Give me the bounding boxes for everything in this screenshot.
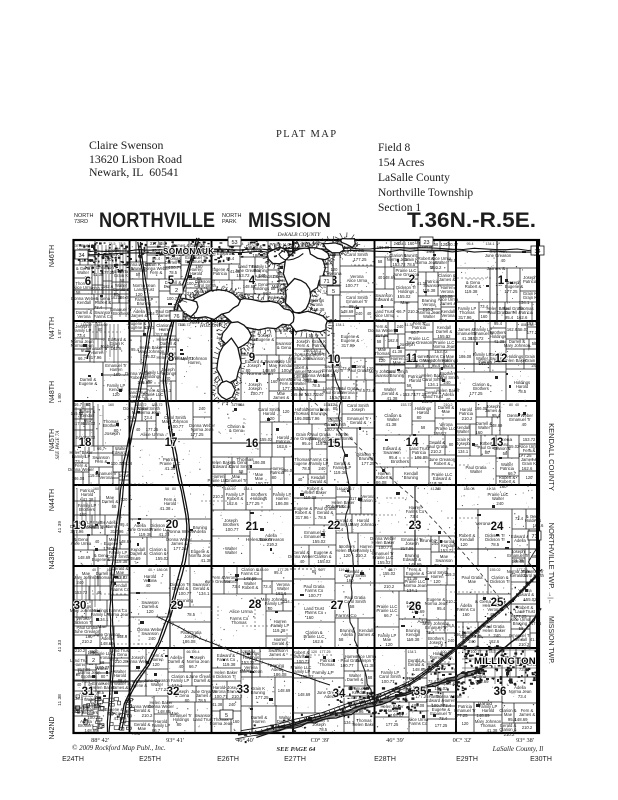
svg-text:78.5: 78.5 xyxy=(518,389,527,394)
svg-text:78.5: 78.5 xyxy=(132,731,141,736)
svg-text:73.4: 73.4 xyxy=(232,584,241,589)
svg-text:66.7: 66.7 xyxy=(152,728,161,733)
svg-text:Kendall: Kendall xyxy=(77,300,91,305)
svg-text:41.38: 41.38 xyxy=(530,637,541,642)
svg-text:Patricia: Patricia xyxy=(213,271,228,276)
svg-text:Clarion &: Clarion & xyxy=(359,498,376,503)
svg-text:80: 80 xyxy=(172,487,176,491)
svg-text:95.4: 95.4 xyxy=(302,441,311,446)
svg-text:153.72: 153.72 xyxy=(523,437,536,442)
svg-text:317.96: 317.96 xyxy=(400,546,414,551)
svg-text:120: 120 xyxy=(385,642,393,647)
svg-text:James &: James & xyxy=(439,277,455,282)
svg-text:80: 80 xyxy=(312,569,317,574)
svg-text:58: 58 xyxy=(519,626,524,631)
svg-text:160: 160 xyxy=(233,719,241,724)
svg-text:120: 120 xyxy=(311,650,317,654)
svg-text:80: 80 xyxy=(185,698,190,703)
svg-text:66.7: 66.7 xyxy=(74,402,83,407)
svg-text:119.38: 119.38 xyxy=(312,307,325,312)
svg-text:41.38: 41.38 xyxy=(387,396,398,401)
svg-text:186.08: 186.08 xyxy=(72,476,85,481)
svg-text:148.69: 148.69 xyxy=(119,539,132,544)
svg-text:80: 80 xyxy=(272,475,277,480)
svg-text:160: 160 xyxy=(113,372,121,377)
svg-text:41.38: 41.38 xyxy=(405,323,414,327)
svg-text:40: 40 xyxy=(522,422,527,427)
svg-text:95.4: 95.4 xyxy=(492,413,501,418)
svg-text:134.1: 134.1 xyxy=(336,323,345,327)
svg-text:240: 240 xyxy=(426,249,434,254)
svg-text:73.4: 73.4 xyxy=(263,584,272,589)
svg-text:Helen Baker: Helen Baker xyxy=(352,722,376,727)
svg-text:148.69: 148.69 xyxy=(258,568,269,572)
svg-text:160: 160 xyxy=(346,578,354,583)
svg-text:66.7: 66.7 xyxy=(189,664,198,669)
svg-text:162.6: 162.6 xyxy=(522,466,533,471)
svg-text:153.72: 153.72 xyxy=(392,262,406,267)
svg-text:40: 40 xyxy=(95,539,100,544)
svg-text:210.2: 210.2 xyxy=(444,403,453,407)
svg-text:119.38: 119.38 xyxy=(304,495,317,500)
svg-text:66.7: 66.7 xyxy=(319,568,326,572)
svg-text:120: 120 xyxy=(146,609,154,614)
svg-text:95.4: 95.4 xyxy=(238,403,245,407)
svg-text:186.08: 186.08 xyxy=(157,568,168,572)
svg-text:210.2: 210.2 xyxy=(356,553,367,558)
svg-text:148.69: 148.69 xyxy=(84,728,98,733)
svg-text:186.08: 186.08 xyxy=(273,672,287,677)
svg-text:58: 58 xyxy=(112,504,117,509)
svg-text:Adella: Adella xyxy=(514,538,526,543)
svg-text:58: 58 xyxy=(339,637,344,642)
svg-text:80: 80 xyxy=(268,606,273,611)
svg-text:148.69: 148.69 xyxy=(225,487,236,491)
svg-text:Adella: Adella xyxy=(254,274,268,280)
svg-text:Eugene &: Eugene & xyxy=(79,381,98,386)
svg-text:100.77: 100.77 xyxy=(178,591,192,596)
svg-text:177.25: 177.25 xyxy=(504,289,518,294)
svg-text:73.4: 73.4 xyxy=(77,333,86,338)
svg-text:160: 160 xyxy=(462,612,470,617)
svg-text:Bruning: Bruning xyxy=(404,475,419,480)
svg-text:Farms Co: Farms Co xyxy=(111,587,130,592)
svg-text:186.08: 186.08 xyxy=(282,468,295,473)
svg-text:119.38: 119.38 xyxy=(339,568,350,572)
svg-text:80: 80 xyxy=(86,403,90,407)
svg-text:Mary Johnson: Mary Johnson xyxy=(350,522,377,527)
svg-text:210.2: 210.2 xyxy=(504,732,515,737)
svg-text:40: 40 xyxy=(446,397,451,402)
svg-text:153.72: 153.72 xyxy=(470,336,484,341)
svg-text:Mae: Mae xyxy=(468,579,477,584)
svg-text:148.69: 148.69 xyxy=(127,556,141,561)
svg-text:40: 40 xyxy=(501,258,506,263)
svg-text:41.38: 41.38 xyxy=(487,728,498,733)
svg-text:210.2: 210.2 xyxy=(213,494,224,499)
svg-text:40: 40 xyxy=(148,568,152,572)
svg-text:58: 58 xyxy=(421,425,426,430)
svg-text:134.1: 134.1 xyxy=(428,382,439,387)
svg-text:134.1: 134.1 xyxy=(408,650,417,654)
svg-text:Robert &: Robert & xyxy=(242,585,259,590)
svg-text:120: 120 xyxy=(526,475,534,480)
svg-text:Adella: Adella xyxy=(194,529,206,534)
svg-text:100.77: 100.77 xyxy=(214,694,228,699)
svg-text:Joseph: Joseph xyxy=(351,407,365,412)
svg-text:120: 120 xyxy=(283,409,291,414)
svg-text:78.5: 78.5 xyxy=(187,612,196,617)
svg-text:119.38: 119.38 xyxy=(334,470,347,475)
svg-text:Alice Urma: Alice Urma xyxy=(140,432,164,438)
svg-text:120: 120 xyxy=(159,242,165,246)
svg-text:100.77: 100.77 xyxy=(378,545,392,550)
svg-text:120: 120 xyxy=(343,553,351,558)
svg-text:40: 40 xyxy=(298,477,303,482)
svg-text:58: 58 xyxy=(368,675,373,680)
svg-text:120: 120 xyxy=(89,650,95,654)
svg-text:134.1: 134.1 xyxy=(244,487,253,491)
svg-text:78.5: 78.5 xyxy=(489,650,496,654)
svg-text:240: 240 xyxy=(397,324,405,329)
svg-text:Helen Baker: Helen Baker xyxy=(246,537,273,543)
svg-text:177.25: 177.25 xyxy=(246,501,260,506)
svg-text:Bruning: Bruning xyxy=(420,538,437,544)
svg-text:95.4: 95.4 xyxy=(437,606,446,611)
svg-text:41.38: 41.38 xyxy=(525,323,534,327)
svg-text:186.08: 186.08 xyxy=(414,455,428,460)
svg-text:Joseph: Joseph xyxy=(104,431,120,437)
svg-text:Fern &: Fern & xyxy=(95,459,108,464)
svg-text:73.4: 73.4 xyxy=(426,630,435,635)
svg-text:95.4: 95.4 xyxy=(505,315,514,320)
svg-text:41.38: 41.38 xyxy=(329,403,338,407)
svg-text:Norma Jean: Norma Jean xyxy=(247,371,273,377)
svg-text:120: 120 xyxy=(433,579,441,584)
svg-text:148.69: 148.69 xyxy=(476,713,490,718)
svg-text:155.02: 155.02 xyxy=(373,318,387,323)
svg-text:Joseph: Joseph xyxy=(399,342,415,348)
svg-text:134.1: 134.1 xyxy=(458,449,469,454)
svg-text:119.38: 119.38 xyxy=(407,637,420,642)
svg-text:240: 240 xyxy=(318,466,326,471)
svg-text:Family LP: Family LP xyxy=(312,670,333,676)
svg-text:134.1: 134.1 xyxy=(486,242,495,246)
svg-text:160: 160 xyxy=(306,615,314,620)
svg-text:210.2: 210.2 xyxy=(431,265,442,270)
svg-text:Joseph: Joseph xyxy=(456,441,470,446)
svg-text:58: 58 xyxy=(165,487,169,491)
svg-text:& Gena: & Gena xyxy=(229,428,244,433)
svg-text:210.2: 210.2 xyxy=(522,725,533,730)
svg-text:148.69: 148.69 xyxy=(490,423,503,428)
svg-text:Thomas: Thomas xyxy=(231,620,246,625)
svg-text:73.4: 73.4 xyxy=(518,694,527,699)
svg-text:80: 80 xyxy=(177,722,182,727)
svg-text:240: 240 xyxy=(148,636,156,641)
svg-text:58: 58 xyxy=(378,259,383,264)
svg-text:Darrell &: Darrell & xyxy=(160,341,176,346)
svg-text:177.25: 177.25 xyxy=(190,432,204,437)
svg-text:73.4: 73.4 xyxy=(439,716,448,721)
svg-text:73.4: 73.4 xyxy=(515,516,524,521)
svg-text:317.96: 317.96 xyxy=(458,315,472,320)
svg-text:66.7: 66.7 xyxy=(411,330,420,335)
svg-text:160: 160 xyxy=(108,403,114,407)
svg-text:Grain K: Grain K xyxy=(145,262,162,268)
svg-text:40: 40 xyxy=(146,583,151,588)
svg-text:Dickson Tr: Dickson Tr xyxy=(490,579,510,584)
svg-text:Thomas: Thomas xyxy=(96,575,111,580)
svg-text:95.4: 95.4 xyxy=(226,256,235,261)
svg-text:58: 58 xyxy=(115,487,119,491)
svg-text:162.6: 162.6 xyxy=(227,501,238,506)
svg-text:210.2: 210.2 xyxy=(431,449,442,454)
svg-text:177.25: 177.25 xyxy=(361,461,375,466)
svg-text:Carol Smith: Carol Smith xyxy=(194,283,217,288)
svg-text:100.77: 100.77 xyxy=(381,679,395,684)
svg-text:210.2: 210.2 xyxy=(462,416,473,421)
svg-text:41.38: 41.38 xyxy=(201,558,212,563)
svg-text:41.38: 41.38 xyxy=(364,663,375,668)
svg-text:78.5: 78.5 xyxy=(319,727,328,732)
svg-text:134.1: 134.1 xyxy=(519,300,530,305)
svg-text:78.5: 78.5 xyxy=(198,698,207,703)
svg-text:160: 160 xyxy=(408,241,416,246)
svg-text:148.69: 148.69 xyxy=(337,487,348,491)
svg-text:41.38: 41.38 xyxy=(160,506,171,511)
svg-text:155.02: 155.02 xyxy=(433,431,447,436)
svg-text:73.4: 73.4 xyxy=(410,514,419,519)
svg-text:Patricia: Patricia xyxy=(523,279,538,284)
svg-text:240: 240 xyxy=(443,380,451,385)
svg-text:Robert &: Robert & xyxy=(434,461,451,466)
svg-text:119.38: 119.38 xyxy=(245,650,256,654)
svg-text:148.69: 148.69 xyxy=(298,692,311,697)
svg-text:134.1: 134.1 xyxy=(398,242,407,246)
svg-text:66.7: 66.7 xyxy=(397,309,406,314)
svg-text:James &: James & xyxy=(273,395,289,400)
svg-text:119.38: 119.38 xyxy=(139,532,152,537)
svg-text:James &: James & xyxy=(487,266,506,272)
svg-text:Alice Urma: Alice Urma xyxy=(71,541,92,546)
svg-text:162.6: 162.6 xyxy=(117,634,128,639)
svg-text:Robert &: Robert & xyxy=(101,344,121,350)
svg-text:160: 160 xyxy=(475,430,483,435)
svg-text:210.2: 210.2 xyxy=(384,584,395,589)
svg-text:186.08: 186.08 xyxy=(464,487,475,491)
svg-text:41.38: 41.38 xyxy=(386,422,397,427)
svg-text:155.02: 155.02 xyxy=(397,294,411,299)
svg-text:153.72: 153.72 xyxy=(152,403,163,407)
svg-text:240: 240 xyxy=(448,638,456,643)
svg-text:100.77: 100.77 xyxy=(255,481,269,486)
svg-text:120: 120 xyxy=(152,662,160,667)
svg-text:210.2: 210.2 xyxy=(82,639,93,644)
svg-text:177.25: 177.25 xyxy=(278,568,289,572)
svg-text:155.02: 155.02 xyxy=(490,568,501,572)
svg-text:120: 120 xyxy=(112,392,120,397)
svg-text:80: 80 xyxy=(509,403,513,407)
svg-text:240: 240 xyxy=(468,639,476,644)
svg-text:177.25: 177.25 xyxy=(469,391,483,396)
svg-text:155.02: 155.02 xyxy=(437,334,451,339)
svg-text:155.02: 155.02 xyxy=(312,539,326,544)
svg-text:95.4: 95.4 xyxy=(494,321,503,326)
svg-text:Walter: Walter xyxy=(95,666,109,672)
svg-text:58: 58 xyxy=(136,272,141,277)
svg-text:66.7: 66.7 xyxy=(384,613,393,618)
svg-text:177.25: 177.25 xyxy=(386,722,399,727)
svg-text:41.38: 41.38 xyxy=(212,702,223,707)
svg-text:148.69: 148.69 xyxy=(341,309,354,314)
svg-text:78.5: 78.5 xyxy=(318,515,327,520)
svg-text:40: 40 xyxy=(179,664,184,669)
svg-text:Brothers: Brothers xyxy=(113,311,129,316)
svg-text:162.6: 162.6 xyxy=(276,591,287,596)
svg-text:Gerald &: Gerald & xyxy=(85,525,105,531)
svg-text:155.02: 155.02 xyxy=(523,597,537,602)
svg-text:148.69: 148.69 xyxy=(278,688,291,693)
svg-text:80: 80 xyxy=(417,415,422,420)
svg-text:240: 240 xyxy=(356,311,364,316)
svg-text:162.6: 162.6 xyxy=(277,444,288,449)
svg-text:160: 160 xyxy=(424,323,430,327)
svg-text:James &: James & xyxy=(269,652,285,657)
svg-text:177.25: 177.25 xyxy=(320,650,331,654)
svg-text:78.5: 78.5 xyxy=(96,690,105,695)
svg-text:Thomas: Thomas xyxy=(236,457,254,463)
svg-text:Norma Jean: Norma Jean xyxy=(210,721,233,726)
svg-text:210.2: 210.2 xyxy=(519,642,530,647)
svg-text:317.96: 317.96 xyxy=(341,343,355,348)
svg-text:James &: James & xyxy=(440,301,456,306)
svg-text:66.7: 66.7 xyxy=(97,446,106,451)
svg-text:41.38: 41.38 xyxy=(431,487,440,491)
svg-text:41.38: 41.38 xyxy=(83,497,94,502)
svg-text:240: 240 xyxy=(229,702,237,707)
svg-text:73.4: 73.4 xyxy=(366,388,375,393)
svg-text:41.38: 41.38 xyxy=(165,466,176,471)
svg-text:Brothers: Brothers xyxy=(391,459,410,465)
svg-text:186.08: 186.08 xyxy=(118,295,131,300)
svg-text:40: 40 xyxy=(388,568,392,572)
svg-text:80: 80 xyxy=(449,442,454,447)
svg-text:134.1: 134.1 xyxy=(199,591,210,596)
svg-text:Dickson Tr: Dickson Tr xyxy=(216,674,236,679)
svg-text:95.4: 95.4 xyxy=(144,397,153,402)
svg-text:95.4: 95.4 xyxy=(432,363,441,368)
svg-text:Gerald &: Gerald & xyxy=(350,420,367,425)
svg-text:Mae: Mae xyxy=(400,300,410,306)
svg-text:Adella: Adella xyxy=(417,619,431,625)
svg-text:119.38: 119.38 xyxy=(223,662,236,667)
svg-text:120: 120 xyxy=(462,721,470,726)
svg-text:78.5: 78.5 xyxy=(312,383,321,388)
svg-text:153.72: 153.72 xyxy=(180,323,191,327)
svg-text:317.96: 317.96 xyxy=(295,515,309,520)
svg-text:120: 120 xyxy=(267,416,275,421)
svg-text:40: 40 xyxy=(300,559,305,564)
svg-text:186.08: 186.08 xyxy=(275,501,289,506)
svg-text:119.38: 119.38 xyxy=(465,289,478,294)
svg-text:Edward &: Edward & xyxy=(375,297,393,302)
svg-text:177.25: 177.25 xyxy=(435,723,448,728)
svg-text:317.96: 317.96 xyxy=(110,529,124,534)
svg-text:100.77: 100.77 xyxy=(345,283,359,288)
svg-text:119.38: 119.38 xyxy=(445,572,458,577)
svg-text:160: 160 xyxy=(499,484,507,489)
svg-text:Bruning: Bruning xyxy=(390,373,405,378)
svg-text:240: 240 xyxy=(496,501,504,506)
svg-text:134.1: 134.1 xyxy=(407,588,418,593)
svg-text:Gerald &: Gerald & xyxy=(310,479,327,484)
svg-text:Farms Co: Farms Co xyxy=(335,613,356,619)
svg-text:Walter: Walter xyxy=(225,550,238,555)
svg-text:120: 120 xyxy=(460,542,468,547)
svg-text:Carol Smith: Carol Smith xyxy=(344,599,367,604)
svg-text:40: 40 xyxy=(515,403,519,407)
svg-text:186.08: 186.08 xyxy=(373,480,387,485)
svg-text:Mary Johnson: Mary Johnson xyxy=(504,343,531,348)
svg-text:162.6: 162.6 xyxy=(313,639,324,644)
svg-text:119.38: 119.38 xyxy=(273,628,286,633)
svg-text:Mae: Mae xyxy=(169,711,179,717)
svg-text:210.2: 210.2 xyxy=(142,713,153,718)
svg-text:58: 58 xyxy=(350,604,355,609)
svg-text:162.6: 162.6 xyxy=(115,575,126,580)
svg-text:June Greason: June Greason xyxy=(393,272,420,277)
svg-text:40: 40 xyxy=(92,568,96,572)
svg-text:Eugene &: Eugene & xyxy=(256,337,275,342)
svg-text:James &: James & xyxy=(112,685,128,690)
svg-text:148.69: 148.69 xyxy=(514,717,528,722)
svg-text:40: 40 xyxy=(136,427,141,432)
svg-text:100.77: 100.77 xyxy=(225,527,239,532)
svg-text:Farms Co: Farms Co xyxy=(409,721,428,726)
svg-text:162.6: 162.6 xyxy=(517,315,528,320)
svg-text:58: 58 xyxy=(434,242,439,247)
svg-text:134.1: 134.1 xyxy=(283,599,294,604)
svg-text:153.72: 153.72 xyxy=(401,403,412,407)
svg-text:134.1: 134.1 xyxy=(98,617,109,622)
svg-text:210.2: 210.2 xyxy=(446,599,457,604)
svg-text:Emanuel Tr: Emanuel Tr xyxy=(509,417,531,422)
svg-text:240: 240 xyxy=(493,633,501,638)
svg-text:120: 120 xyxy=(379,358,387,363)
svg-text:177.25: 177.25 xyxy=(353,257,367,262)
svg-text:Verona: Verona xyxy=(475,521,491,527)
svg-text:Thomas: Thomas xyxy=(319,662,334,667)
svg-text:78.5: 78.5 xyxy=(439,318,448,323)
svg-text:Mae: Mae xyxy=(393,360,402,365)
svg-text:Harold: Harold xyxy=(478,701,492,707)
svg-text:240: 240 xyxy=(199,406,207,411)
svg-text:155.02: 155.02 xyxy=(155,556,169,561)
svg-text:Walter: Walter xyxy=(470,469,483,474)
svg-text:155.02: 155.02 xyxy=(260,437,273,442)
svg-text:& Gena: & Gena xyxy=(475,599,492,605)
svg-text:148.69: 148.69 xyxy=(512,559,525,564)
svg-text:58: 58 xyxy=(407,383,412,388)
svg-text:78.5: 78.5 xyxy=(434,563,443,568)
svg-text:177.25: 177.25 xyxy=(517,568,528,572)
svg-text:Darrell &: Darrell & xyxy=(194,678,210,683)
svg-text:317.96: 317.96 xyxy=(306,416,320,421)
svg-text:186.08: 186.08 xyxy=(459,354,472,359)
svg-text:100.77: 100.77 xyxy=(340,663,354,668)
svg-text:58: 58 xyxy=(377,339,382,344)
